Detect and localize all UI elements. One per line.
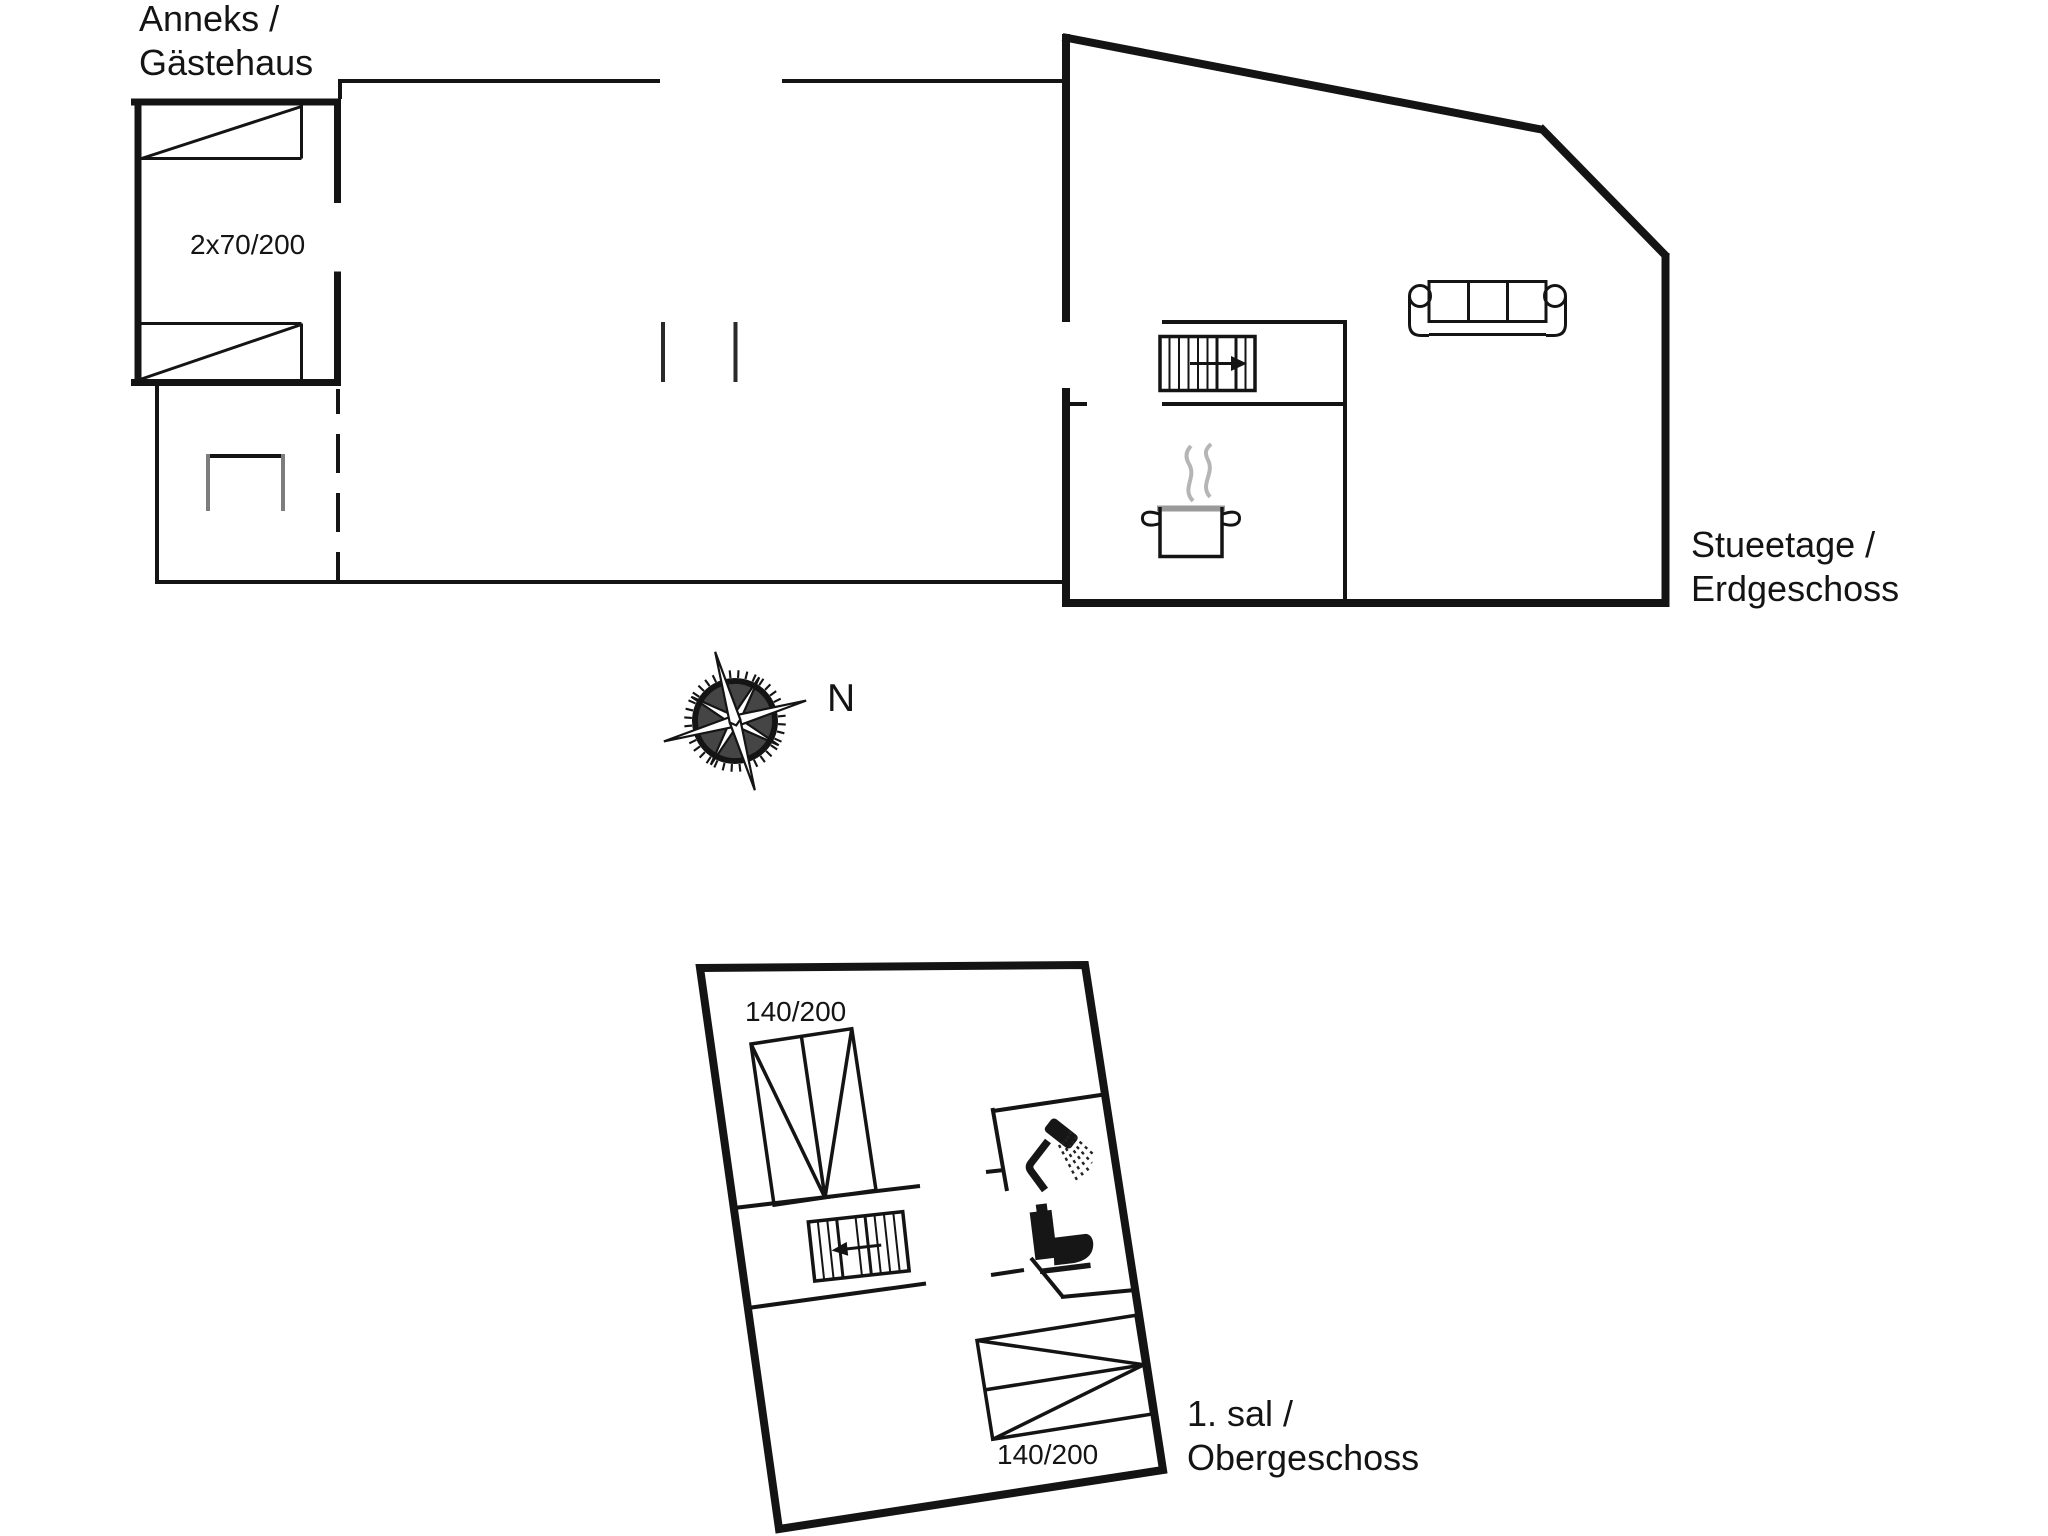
svg-text:Stueetage /: Stueetage / <box>1691 524 1875 565</box>
svg-text:1. sal /: 1. sal / <box>1187 1393 1293 1434</box>
svg-text:Obergeschoss: Obergeschoss <box>1187 1437 1419 1478</box>
svg-text:140/200: 140/200 <box>997 1439 1098 1470</box>
svg-text:Erdgeschoss: Erdgeschoss <box>1691 568 1899 609</box>
svg-text:N: N <box>827 677 855 720</box>
svg-text:Gästehaus: Gästehaus <box>139 42 313 83</box>
svg-text:2x70/200: 2x70/200 <box>190 229 305 260</box>
svg-text:140/200: 140/200 <box>745 996 846 1027</box>
svg-text:Anneks /: Anneks / <box>139 0 279 39</box>
